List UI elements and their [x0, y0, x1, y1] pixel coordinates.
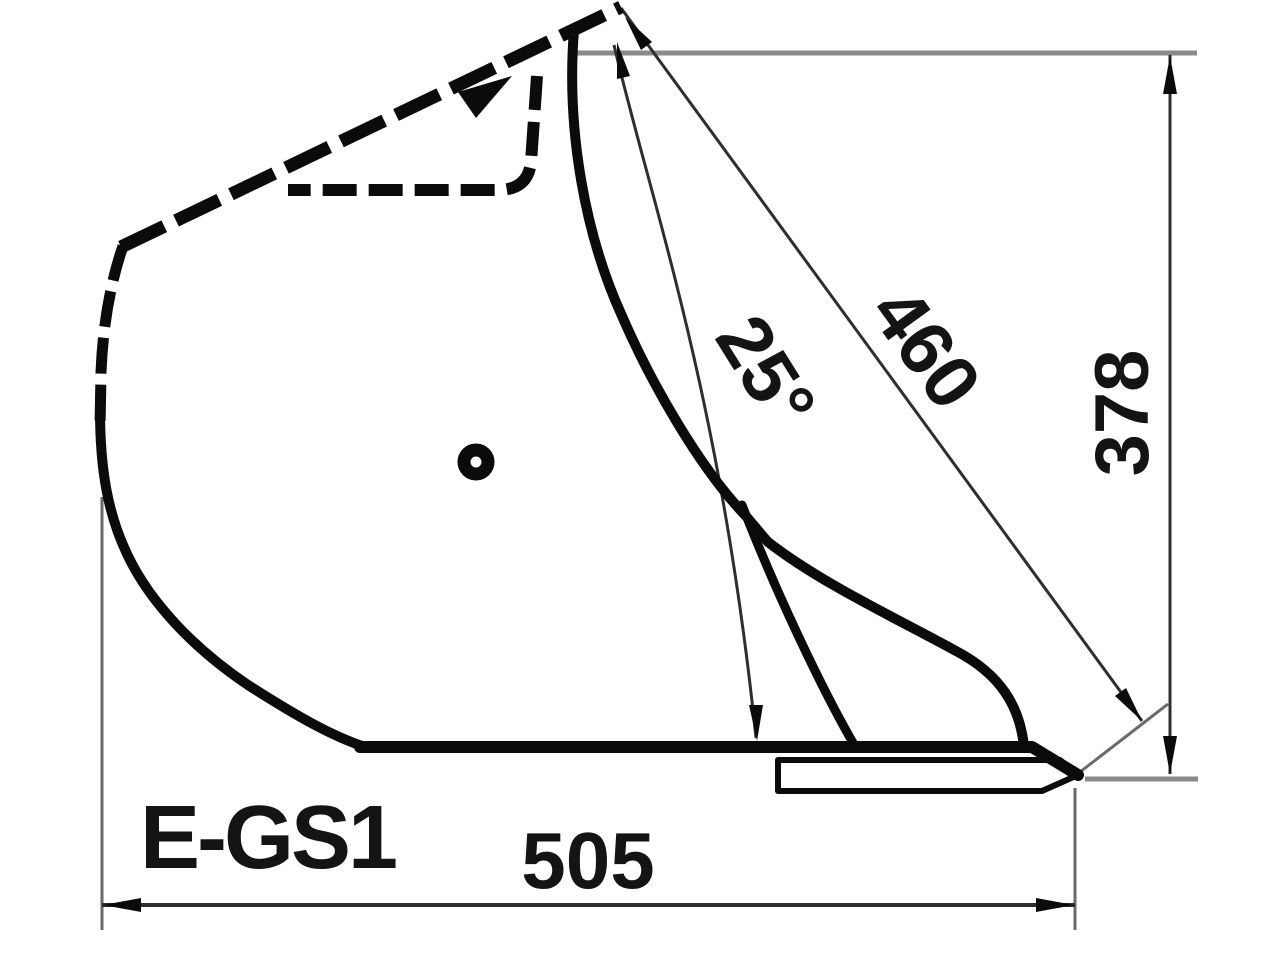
dimension-label-505: 505: [521, 816, 654, 905]
dimension-label-460: 460: [854, 272, 997, 425]
arrow-460-bottom: [1115, 688, 1142, 721]
bucket-profile-drawing: 505 460 378 25° E-GS1: [0, 0, 1280, 960]
open-position-left-dashed: [100, 246, 123, 428]
arrow-505-left: [103, 898, 141, 912]
bucket-front-shell-curve: [100, 410, 365, 747]
arrow-25-top: [617, 42, 630, 79]
arrow-378-top: [1163, 56, 1177, 94]
dimension-label-378: 378: [1080, 350, 1165, 477]
open-position-blade-dashed: [288, 76, 537, 190]
arrow-505-right: [1036, 898, 1074, 912]
arrow-378-bottom: [1163, 736, 1177, 774]
open-position-back-dashed: [121, 7, 621, 247]
model-label: E-GS1: [140, 788, 396, 888]
technical-drawing-page: 505 460 378 25° E-GS1: [0, 0, 1280, 960]
pivot-point-dot: [464, 450, 488, 474]
dimension-label-angle: 25°: [699, 301, 832, 444]
oblique-extension-line: [1080, 704, 1168, 772]
arrow-25-bottom: [749, 705, 763, 741]
cutting-edge-plate: [778, 760, 1078, 791]
bucket-back-wall-curve: [572, 30, 768, 542]
